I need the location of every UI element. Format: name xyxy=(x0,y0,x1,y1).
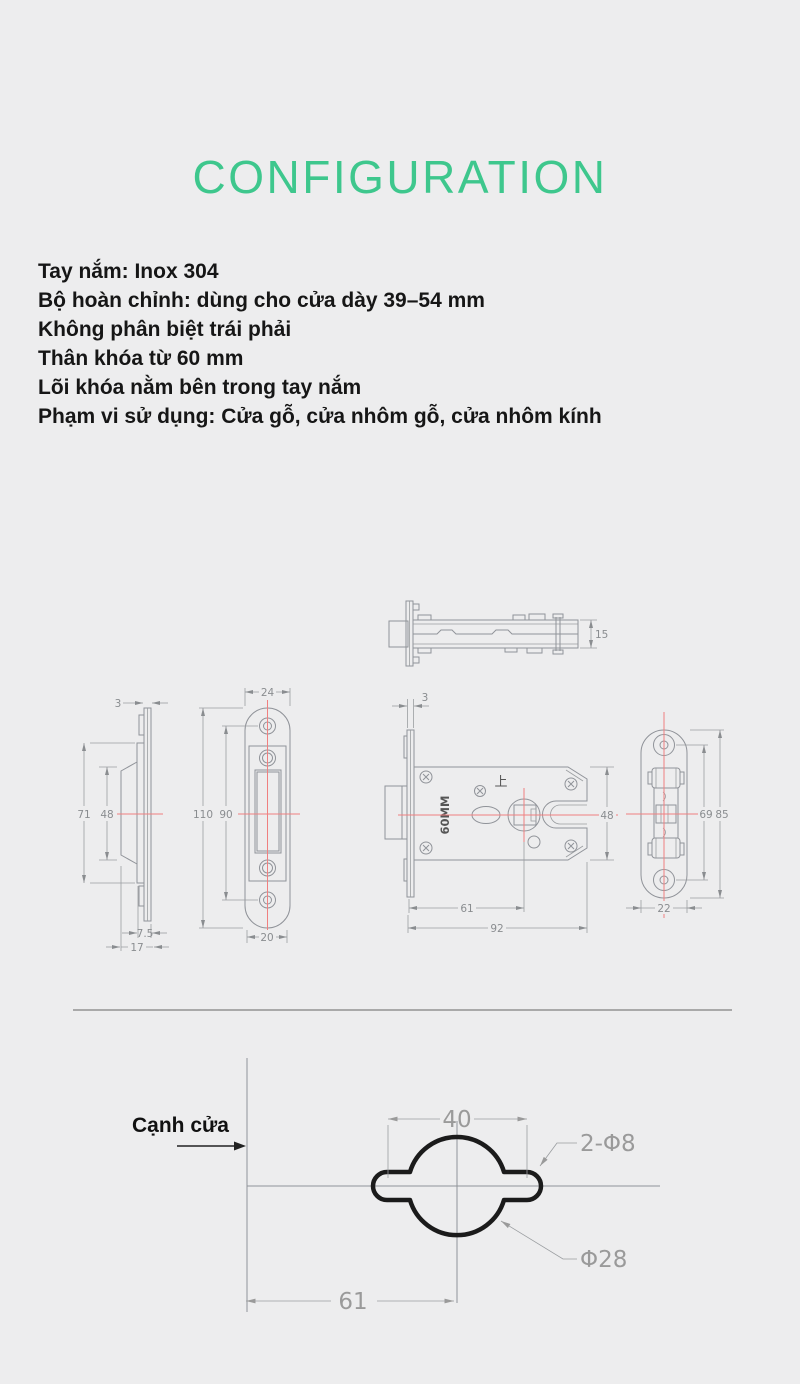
dim-strike-slot-width: 20 xyxy=(260,932,273,944)
spec-line-usage: Phạm vi sử dụng: Cửa gỗ, cửa nhôm gỗ, cử… xyxy=(38,402,738,431)
spec-line-door-thickness: Bộ hoàn chỉnh: dùng cho cửa dày 39–54 mm xyxy=(38,286,738,315)
drill-template-drawing: 40 2-Φ8 Φ28 61 xyxy=(0,1040,800,1360)
door-edge-arrow xyxy=(177,1142,246,1151)
dim-strike-hole-span: 90 xyxy=(219,809,232,821)
handle-side-view-drawing: 3 71 48 7.5 17 xyxy=(76,698,169,954)
dim-end-hole-span: 69 xyxy=(699,809,712,821)
dim-end-plate-width: 22 xyxy=(657,903,670,915)
dim-top-height: 15 xyxy=(595,629,608,641)
page-title: CONFIGURATION xyxy=(0,150,800,204)
strike-plate-front-drawing: 24 110 90 20 xyxy=(192,685,300,944)
up-mark-label: 上 xyxy=(494,775,507,790)
lock-end-view-drawing: 69 85 22 xyxy=(626,712,731,918)
product-configuration-page: { "title": "CONFIGURATION", "specs": { "… xyxy=(0,0,800,1384)
dim-backset: 61 xyxy=(460,903,473,915)
dim-body-length: 92 xyxy=(490,923,503,935)
dim-plate-thickness: 3 xyxy=(115,698,122,710)
center-hole-label: Φ28 xyxy=(580,1247,627,1273)
dim-outer-height: 71 xyxy=(77,809,90,821)
spec-line-handedness: Không phân biệt trái phải xyxy=(38,315,738,344)
section-divider xyxy=(73,1009,732,1011)
dim-body-height: 48 xyxy=(600,810,613,822)
dim-depth-total: 17 xyxy=(130,942,143,954)
dim-strike-height: 110 xyxy=(193,809,213,821)
spec-line-cylinder: Lõi khóa nằm bên trong tay nắm xyxy=(38,373,738,402)
dim-faceplate-thickness: 3 xyxy=(422,692,429,704)
spec-list: Tay nắm: Inox 304 Bộ hoàn chỉnh: dùng ch… xyxy=(38,257,738,431)
spec-line-lock-body: Thân khóa từ 60 mm xyxy=(38,344,738,373)
dim-hole-spacing: 40 xyxy=(442,1107,471,1133)
dim-strike-width: 24 xyxy=(261,687,275,699)
small-holes-label: 2-Φ8 xyxy=(580,1131,636,1157)
dim-boss-height: 48 xyxy=(100,809,113,821)
dim-depth-small: 7.5 xyxy=(137,928,154,940)
dim-end-plate-height: 85 xyxy=(715,809,728,821)
top-plan-view-drawing: 15 xyxy=(389,601,608,666)
dim-template-backset: 61 xyxy=(338,1289,367,1315)
lock-body-drawing: 上 60MM 3 48 61 92 xyxy=(385,692,618,935)
technical-views-sheet: 15 3 71 48 7.5 xyxy=(0,580,800,980)
spec-line-handle: Tay nắm: Inox 304 xyxy=(38,257,738,286)
